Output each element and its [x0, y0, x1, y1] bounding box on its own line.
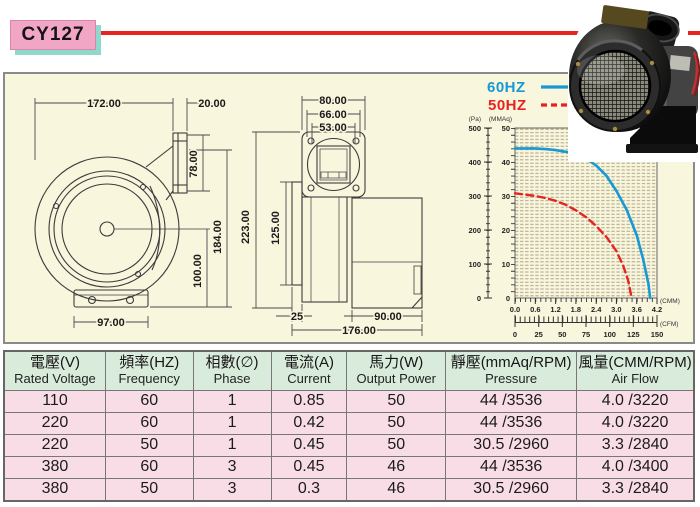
table-row: 110 60 1 0.85 50 44 /3536 4.0 /3220: [4, 390, 694, 412]
cfm-axis: [515, 315, 657, 327]
pa-axis: [484, 128, 492, 298]
model-number: CY127: [21, 24, 84, 46]
table-cell: 60: [105, 412, 193, 434]
axis-tick-label: 30: [502, 192, 510, 201]
header-zh: 頻率(HZ): [106, 354, 193, 372]
table-row: 380 60 3 0.45 46 44 /3536 4.0 /3400: [4, 456, 694, 478]
table-cell: 50: [347, 390, 446, 412]
dim-label: 97.00: [97, 317, 125, 329]
table-cell: 380: [4, 456, 105, 478]
header-rule-tail: [688, 31, 700, 35]
axis-tick-label: 0: [477, 294, 481, 303]
mmaq-tick-labels: 50 40 30 20 10 0: [502, 124, 510, 303]
axis-tick-label: 150: [651, 330, 664, 339]
axis-tick-label: 0: [513, 330, 517, 339]
table-cell: 3: [193, 456, 271, 478]
table-cell: 3: [193, 478, 271, 501]
header-en: Phase: [194, 372, 271, 387]
col-header-pressure: 靜壓(mmAq/RPM)Pressure: [446, 351, 577, 390]
table-cell: 46: [347, 456, 446, 478]
header-zh: 風量(CMM/RPM): [577, 354, 693, 372]
axis-tick-label: 0: [506, 294, 510, 303]
spec-table: 電壓(V)Rated Voltage 頻率(HZ)Frequency 相數(∅)…: [3, 350, 695, 502]
header-en: Frequency: [106, 372, 193, 387]
header-zh: 電流(A): [272, 354, 347, 372]
chart-legend: 60HZ 50HZ: [487, 79, 569, 114]
product-photo: [560, 0, 700, 162]
axis-tick-label: 20: [502, 226, 510, 235]
pa-tick-labels: 500 400 300 200 100 0: [468, 124, 481, 303]
table-cell: 0.42: [271, 412, 347, 434]
table-cell: 0.3: [271, 478, 347, 501]
header-zh: 電壓(V): [5, 354, 105, 372]
col-header-current: 電流(A)Current: [271, 351, 347, 390]
axis-tick-label: 50: [558, 330, 566, 339]
table-cell: 0.45: [271, 456, 347, 478]
table-cell: 30.5 /2960: [446, 434, 577, 456]
header-en: Rated Voltage: [5, 372, 105, 387]
table-cell: 3.3 /2840: [577, 434, 694, 456]
axis-tick-label: 3.0: [611, 305, 621, 314]
table-cell: 50: [347, 412, 446, 434]
dim-label: 66.00: [319, 109, 347, 121]
side-view-dim-labels: 80.00 66.00 53.00 223.00 125.00 25 90.00…: [240, 95, 402, 337]
dim-label: 20.00: [198, 98, 226, 110]
dim-label: 80.00: [319, 95, 347, 107]
axis-tick-label: 4.2: [652, 305, 662, 314]
table-cell: 0.45: [271, 434, 347, 456]
table-cell: 380: [4, 478, 105, 501]
axis-tick-label: 1.2: [550, 305, 560, 314]
table-cell: 50: [105, 434, 193, 456]
dim-label: 176.00: [342, 325, 376, 337]
axis-tick-label: 125: [627, 330, 640, 339]
cmm-tick-labels: 0.0 0.6 1.2 1.8 2.4 3.0 3.6 4.2: [510, 305, 662, 314]
axis-tick-label: 2.4: [591, 305, 602, 314]
table-cell: 50: [347, 434, 446, 456]
col-header-air-flow: 風量(CMM/RPM)Air Flow: [577, 351, 694, 390]
dimension-drawings: 172.00 20.00 78.00 184.00 100.00 97.00: [5, 74, 475, 342]
axis-tick-label: 10: [502, 260, 510, 269]
col-header-voltage: 電壓(V)Rated Voltage: [4, 351, 105, 390]
dim-label: 125.00: [270, 211, 282, 245]
axis-tick-label: 40: [502, 158, 510, 167]
header-en: Pressure: [446, 372, 576, 387]
table-cell: 1: [193, 434, 271, 456]
mmaq-axis-label: (MMAq): [489, 116, 512, 123]
table-cell: 1: [193, 412, 271, 434]
legend-50hz-label: 50HZ: [488, 97, 527, 114]
col-header-phase: 相數(∅)Phase: [193, 351, 271, 390]
dim-label: 184.00: [212, 220, 224, 254]
axis-tick-label: 200: [468, 226, 481, 235]
table-cell: 44 /3536: [446, 456, 577, 478]
table-cell: 4.0 /3220: [577, 390, 694, 412]
cmm-axis-label: (CMM): [660, 298, 680, 305]
header-en: Current: [272, 372, 347, 387]
header-en: Air Flow: [577, 372, 693, 387]
table-cell: 44 /3536: [446, 412, 577, 434]
dim-label: 223.00: [240, 210, 252, 244]
axis-tick-label: 100: [468, 260, 481, 269]
axis-tick-label: 75: [582, 330, 590, 339]
axis-tick-label: 400: [468, 158, 481, 167]
model-badge: CY127: [10, 20, 96, 50]
table-row: 220 60 1 0.42 50 44 /3536 4.0 /3220: [4, 412, 694, 434]
dim-label: 90.00: [374, 311, 402, 323]
table-cell: 60: [105, 390, 193, 412]
axis-tick-label: 0.0: [510, 305, 520, 314]
table-cell: 60: [105, 456, 193, 478]
col-header-output-power: 馬力(W)Output Power: [347, 351, 446, 390]
table-cell: 4.0 /3400: [577, 456, 694, 478]
table-cell: 0.85: [271, 390, 347, 412]
table-cell: 4.0 /3220: [577, 412, 694, 434]
table-cell: 44 /3536: [446, 390, 577, 412]
table-cell: 110: [4, 390, 105, 412]
axis-tick-label: 100: [603, 330, 616, 339]
header-en: Output Power: [347, 372, 445, 387]
header-row: 電壓(V)Rated Voltage 頻率(HZ)Frequency 相數(∅)…: [4, 351, 694, 390]
table-cell: 3.3 /2840: [577, 478, 694, 501]
table-cell: 30.5 /2960: [446, 478, 577, 501]
legend-60hz-label: 60HZ: [487, 79, 526, 96]
axis-tick-label: 1.8: [571, 305, 581, 314]
front-view: [35, 133, 210, 307]
dim-label: 100.00: [192, 254, 204, 288]
table-cell: 50: [105, 478, 193, 501]
table-cell: 46: [347, 478, 446, 501]
dim-label: 78.00: [188, 150, 200, 178]
cmm-axis: [515, 298, 657, 304]
front-view-dim-labels: 172.00 20.00 78.00 184.00 100.00 97.00: [87, 98, 226, 329]
catalog-page: CY127: [0, 0, 700, 507]
table-row: 380 50 3 0.3 46 30.5 /2960 3.3 /2840: [4, 478, 694, 501]
pa-axis-label: (Pa): [469, 116, 481, 123]
axis-tick-label: 3.6: [631, 305, 641, 314]
axis-tick-label: 0.6: [530, 305, 540, 314]
cfm-tick-labels: 0 25 50 75 100 125 150: [513, 330, 663, 339]
side-view: [292, 132, 422, 308]
table-cell: 1: [193, 390, 271, 412]
dim-label: 172.00: [87, 98, 121, 110]
axis-tick-label: 50: [502, 124, 510, 133]
cfm-axis-label: (CFM): [660, 321, 678, 328]
table-cell: 220: [4, 412, 105, 434]
axis-tick-label: 300: [468, 192, 481, 201]
table-cell: 220: [4, 434, 105, 456]
header-zh: 靜壓(mmAq/RPM): [446, 354, 576, 372]
col-header-frequency: 頻率(HZ)Frequency: [105, 351, 193, 390]
axis-tick-label: 500: [468, 124, 481, 133]
dim-label: 25: [291, 311, 303, 323]
header-zh: 馬力(W): [347, 354, 445, 372]
table-row: 220 50 1 0.45 50 30.5 /2960 3.3 /2840: [4, 434, 694, 456]
dim-label: 53.00: [319, 122, 347, 134]
header-zh: 相數(∅): [194, 354, 271, 372]
axis-tick-label: 25: [535, 330, 543, 339]
